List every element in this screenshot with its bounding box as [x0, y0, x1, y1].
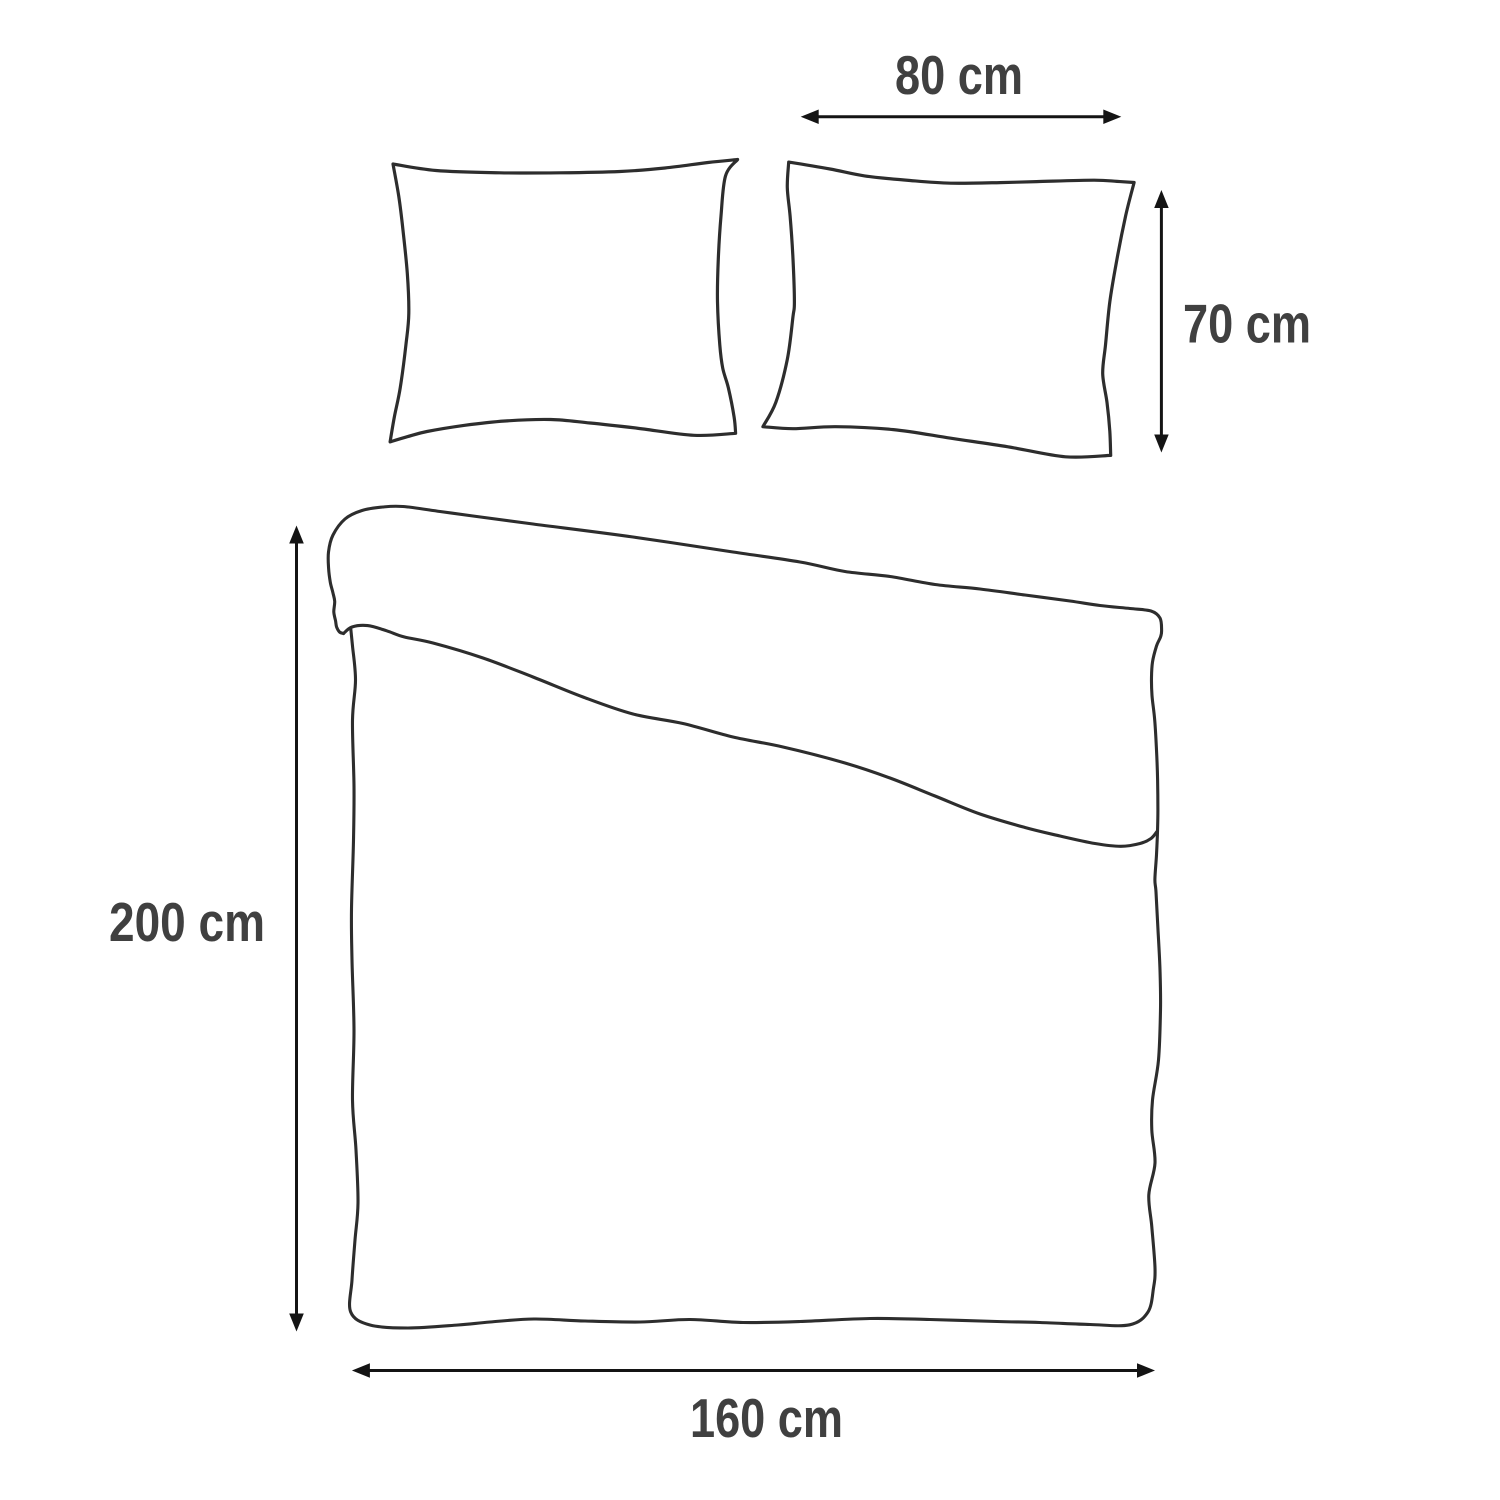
- svg-text:160 cm: 160 cm: [690, 1387, 843, 1449]
- svg-text:70 cm: 70 cm: [1183, 293, 1311, 355]
- svg-text:80 cm: 80 cm: [895, 44, 1023, 106]
- svg-text:200 cm: 200 cm: [109, 891, 265, 953]
